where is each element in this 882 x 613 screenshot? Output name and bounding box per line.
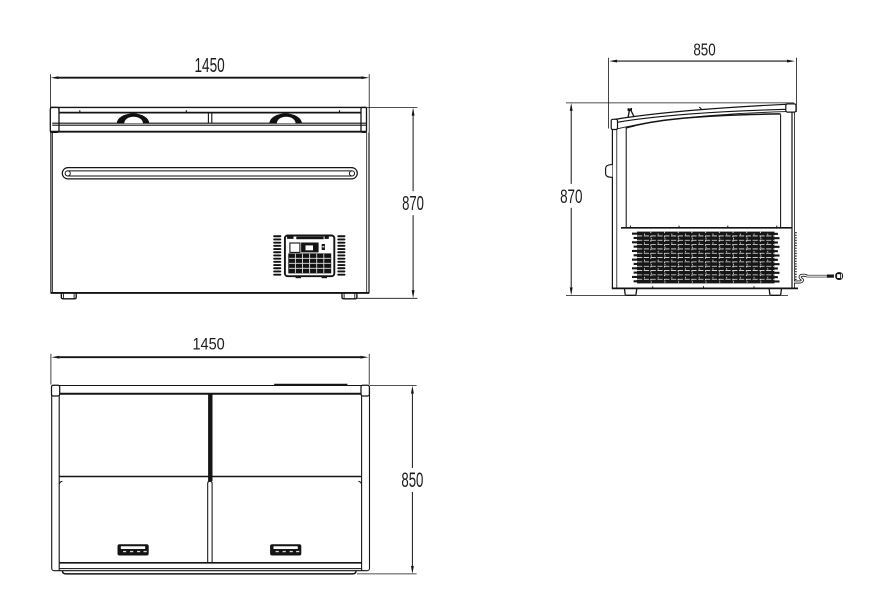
svg-text:870: 870 [402, 193, 424, 215]
svg-text:1450: 1450 [192, 336, 224, 354]
svg-text:870: 870 [560, 186, 582, 208]
svg-text:850: 850 [693, 39, 715, 59]
svg-text:1450: 1450 [195, 55, 225, 77]
svg-text:850: 850 [401, 469, 423, 492]
